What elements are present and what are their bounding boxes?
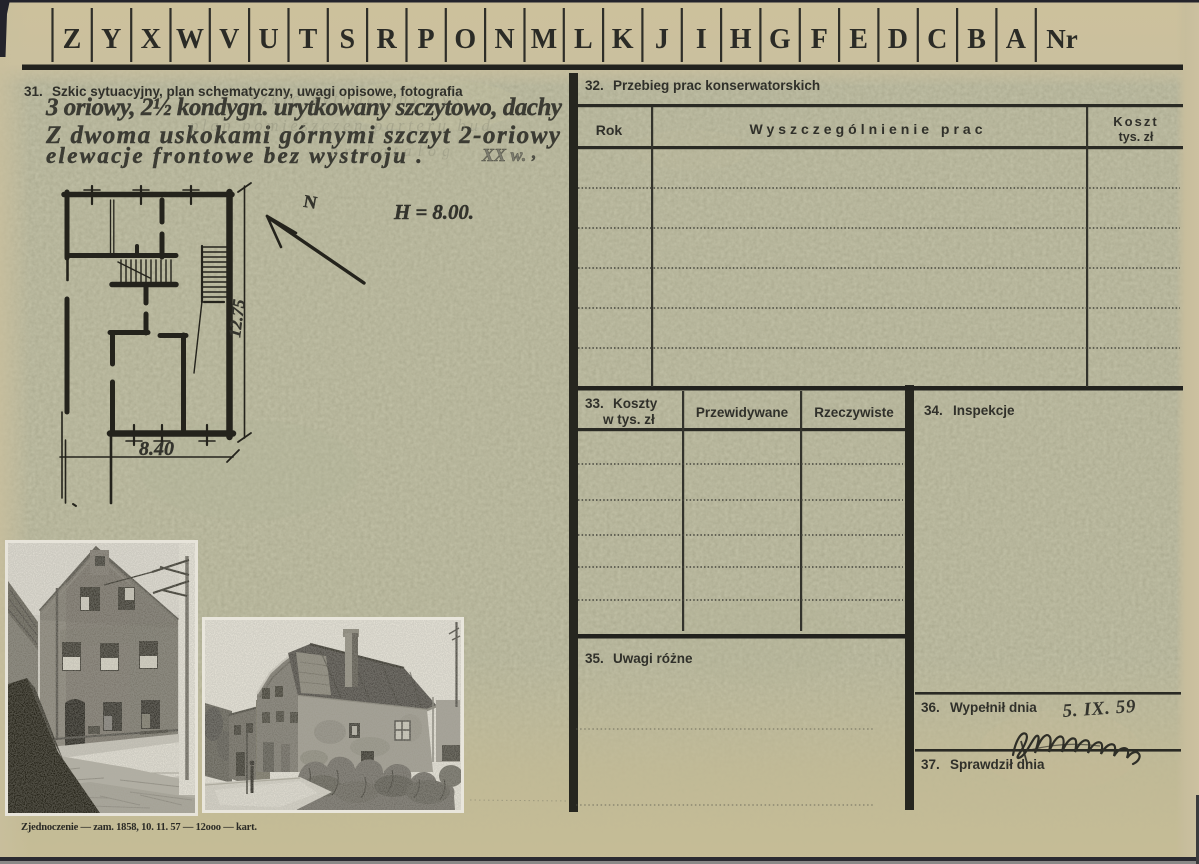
svg-text:8.40: 8.40	[139, 438, 174, 460]
svg-text:K: K	[612, 24, 634, 55]
svg-text:O: O	[454, 24, 476, 55]
svg-text:Rzeczywiste: Rzeczywiste	[814, 405, 894, 420]
svg-text:31.: 31.	[24, 84, 43, 99]
svg-text:G: G	[769, 24, 791, 55]
svg-text:Uwagi różne: Uwagi różne	[613, 651, 693, 666]
svg-text:Y: Y	[101, 24, 121, 55]
svg-text:tys. zł: tys. zł	[1119, 130, 1154, 144]
svg-text:D: D	[888, 24, 908, 55]
svg-text:32.: 32.	[585, 78, 604, 93]
svg-text:P: P	[417, 24, 434, 55]
svg-text:Sprawdził dnia: Sprawdził dnia	[950, 757, 1045, 772]
svg-text:Inspekcje: Inspekcje	[953, 403, 1015, 418]
svg-text:X: X	[141, 24, 161, 55]
svg-text:V: V	[219, 24, 239, 55]
svg-text:C: C	[927, 24, 947, 55]
svg-text:L: L	[574, 24, 593, 55]
svg-text:Przewidywane: Przewidywane	[696, 405, 789, 420]
svg-text:33.: 33.	[585, 396, 604, 411]
svg-text:E: E	[849, 24, 868, 55]
svg-text:Rok: Rok	[596, 122, 623, 138]
svg-text:Przebieg prac konserwatorskich: Przebieg prac konserwatorskich	[613, 78, 820, 93]
svg-text:H: H	[730, 24, 752, 55]
svg-text:B: B	[967, 24, 986, 55]
svg-text:36.: 36.	[921, 700, 940, 715]
svg-text:M: M	[531, 24, 557, 55]
svg-text:,: ,	[531, 142, 537, 162]
svg-text:S: S	[340, 24, 356, 55]
svg-text:N: N	[494, 24, 514, 55]
svg-text:W: W	[176, 24, 204, 55]
svg-text:F: F	[811, 24, 828, 55]
svg-text:Nr: Nr	[1046, 24, 1077, 54]
svg-text:37.: 37.	[921, 757, 940, 772]
svg-text:U: U	[258, 24, 278, 55]
svg-text:Z: Z	[63, 24, 82, 55]
svg-text:35.: 35.	[585, 651, 604, 666]
svg-text:XX w.: XX w.	[481, 145, 526, 165]
svg-text:I: I	[696, 24, 707, 55]
svg-text:34.: 34.	[924, 403, 943, 418]
svg-text:J: J	[655, 24, 669, 55]
svg-text:R: R	[376, 24, 397, 55]
svg-text:Zjednoczenie — zam. 1858, 10.: Zjednoczenie — zam. 1858, 10. 11. 57 — 1…	[21, 822, 257, 833]
svg-text:Koszt: Koszt	[1113, 114, 1158, 129]
svg-text:H = 8.00.: H = 8.00.	[393, 200, 474, 224]
svg-text:Wyszczególnienie prac: Wyszczególnienie prac	[749, 121, 986, 137]
svg-text:Wypełnił dnia: Wypełnił dnia	[950, 700, 1037, 715]
svg-text:A: A	[1006, 24, 1027, 55]
svg-text:w tys. zł: w tys. zł	[602, 412, 655, 427]
svg-text:T: T	[299, 24, 318, 55]
svg-text:Koszty: Koszty	[613, 396, 658, 411]
